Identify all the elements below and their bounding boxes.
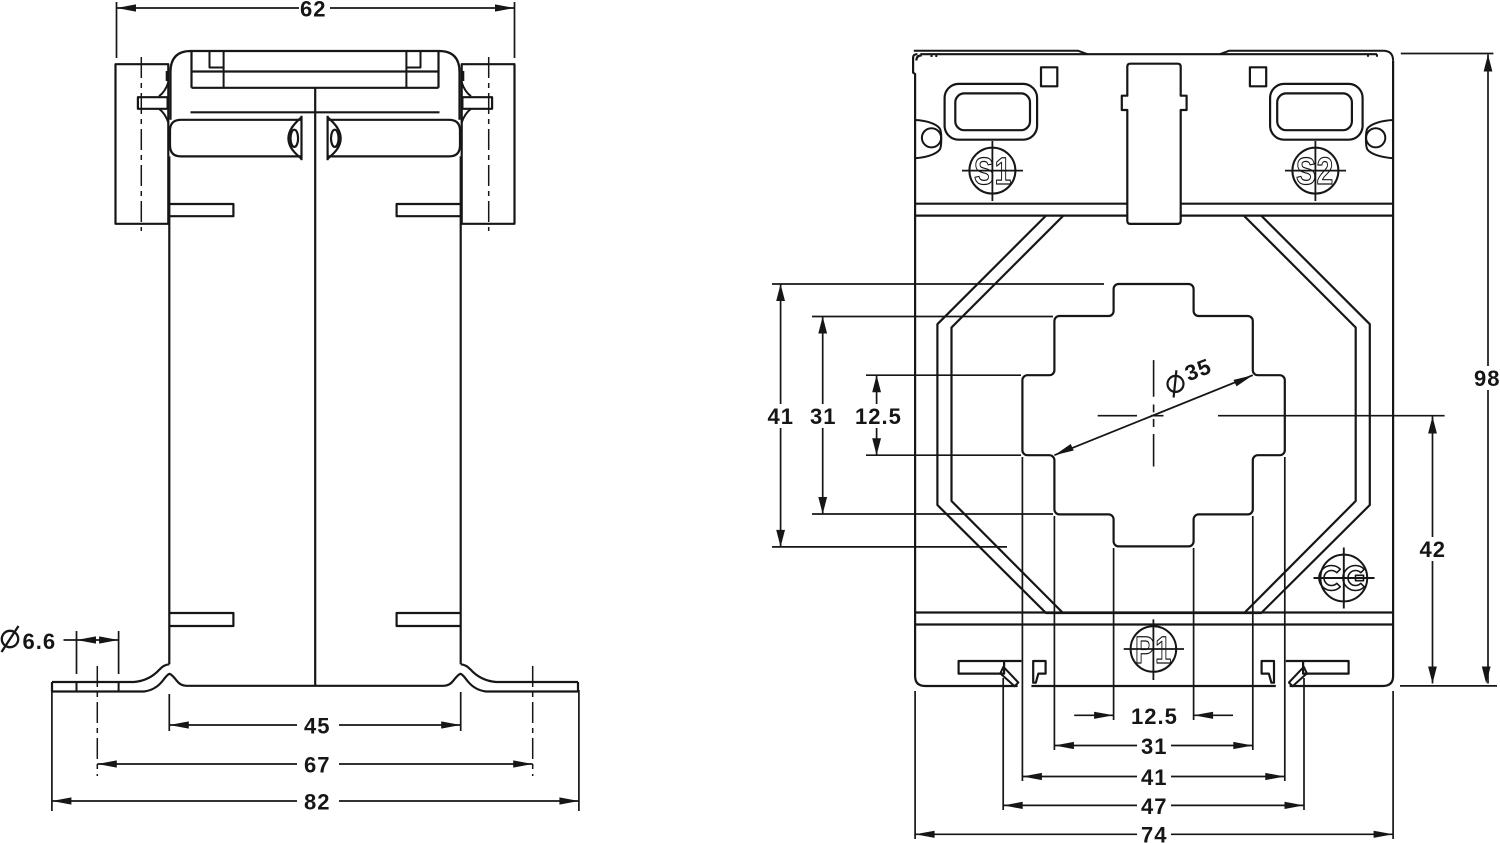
svg-text:41: 41 [768, 404, 794, 429]
svg-text:82: 82 [304, 790, 330, 815]
svg-text:41: 41 [1141, 765, 1167, 790]
svg-text:S2: S2 [1296, 151, 1334, 193]
svg-text:67: 67 [304, 753, 330, 778]
svg-text:S1: S1 [974, 151, 1012, 193]
svg-text:12.5: 12.5 [855, 404, 902, 429]
svg-text:35: 35 [1181, 353, 1215, 386]
svg-text:31: 31 [810, 404, 836, 429]
svg-text:42: 42 [1420, 537, 1446, 562]
svg-text:47: 47 [1141, 794, 1167, 819]
svg-text:12.5: 12.5 [1131, 704, 1178, 729]
svg-text:98: 98 [1474, 366, 1500, 391]
svg-text:62: 62 [300, 0, 326, 22]
svg-text:6.6: 6.6 [23, 629, 57, 654]
svg-text:74: 74 [1141, 823, 1167, 843]
svg-text:31: 31 [1141, 734, 1167, 759]
svg-text:P1: P1 [1135, 630, 1172, 672]
svg-text:45: 45 [304, 714, 330, 739]
